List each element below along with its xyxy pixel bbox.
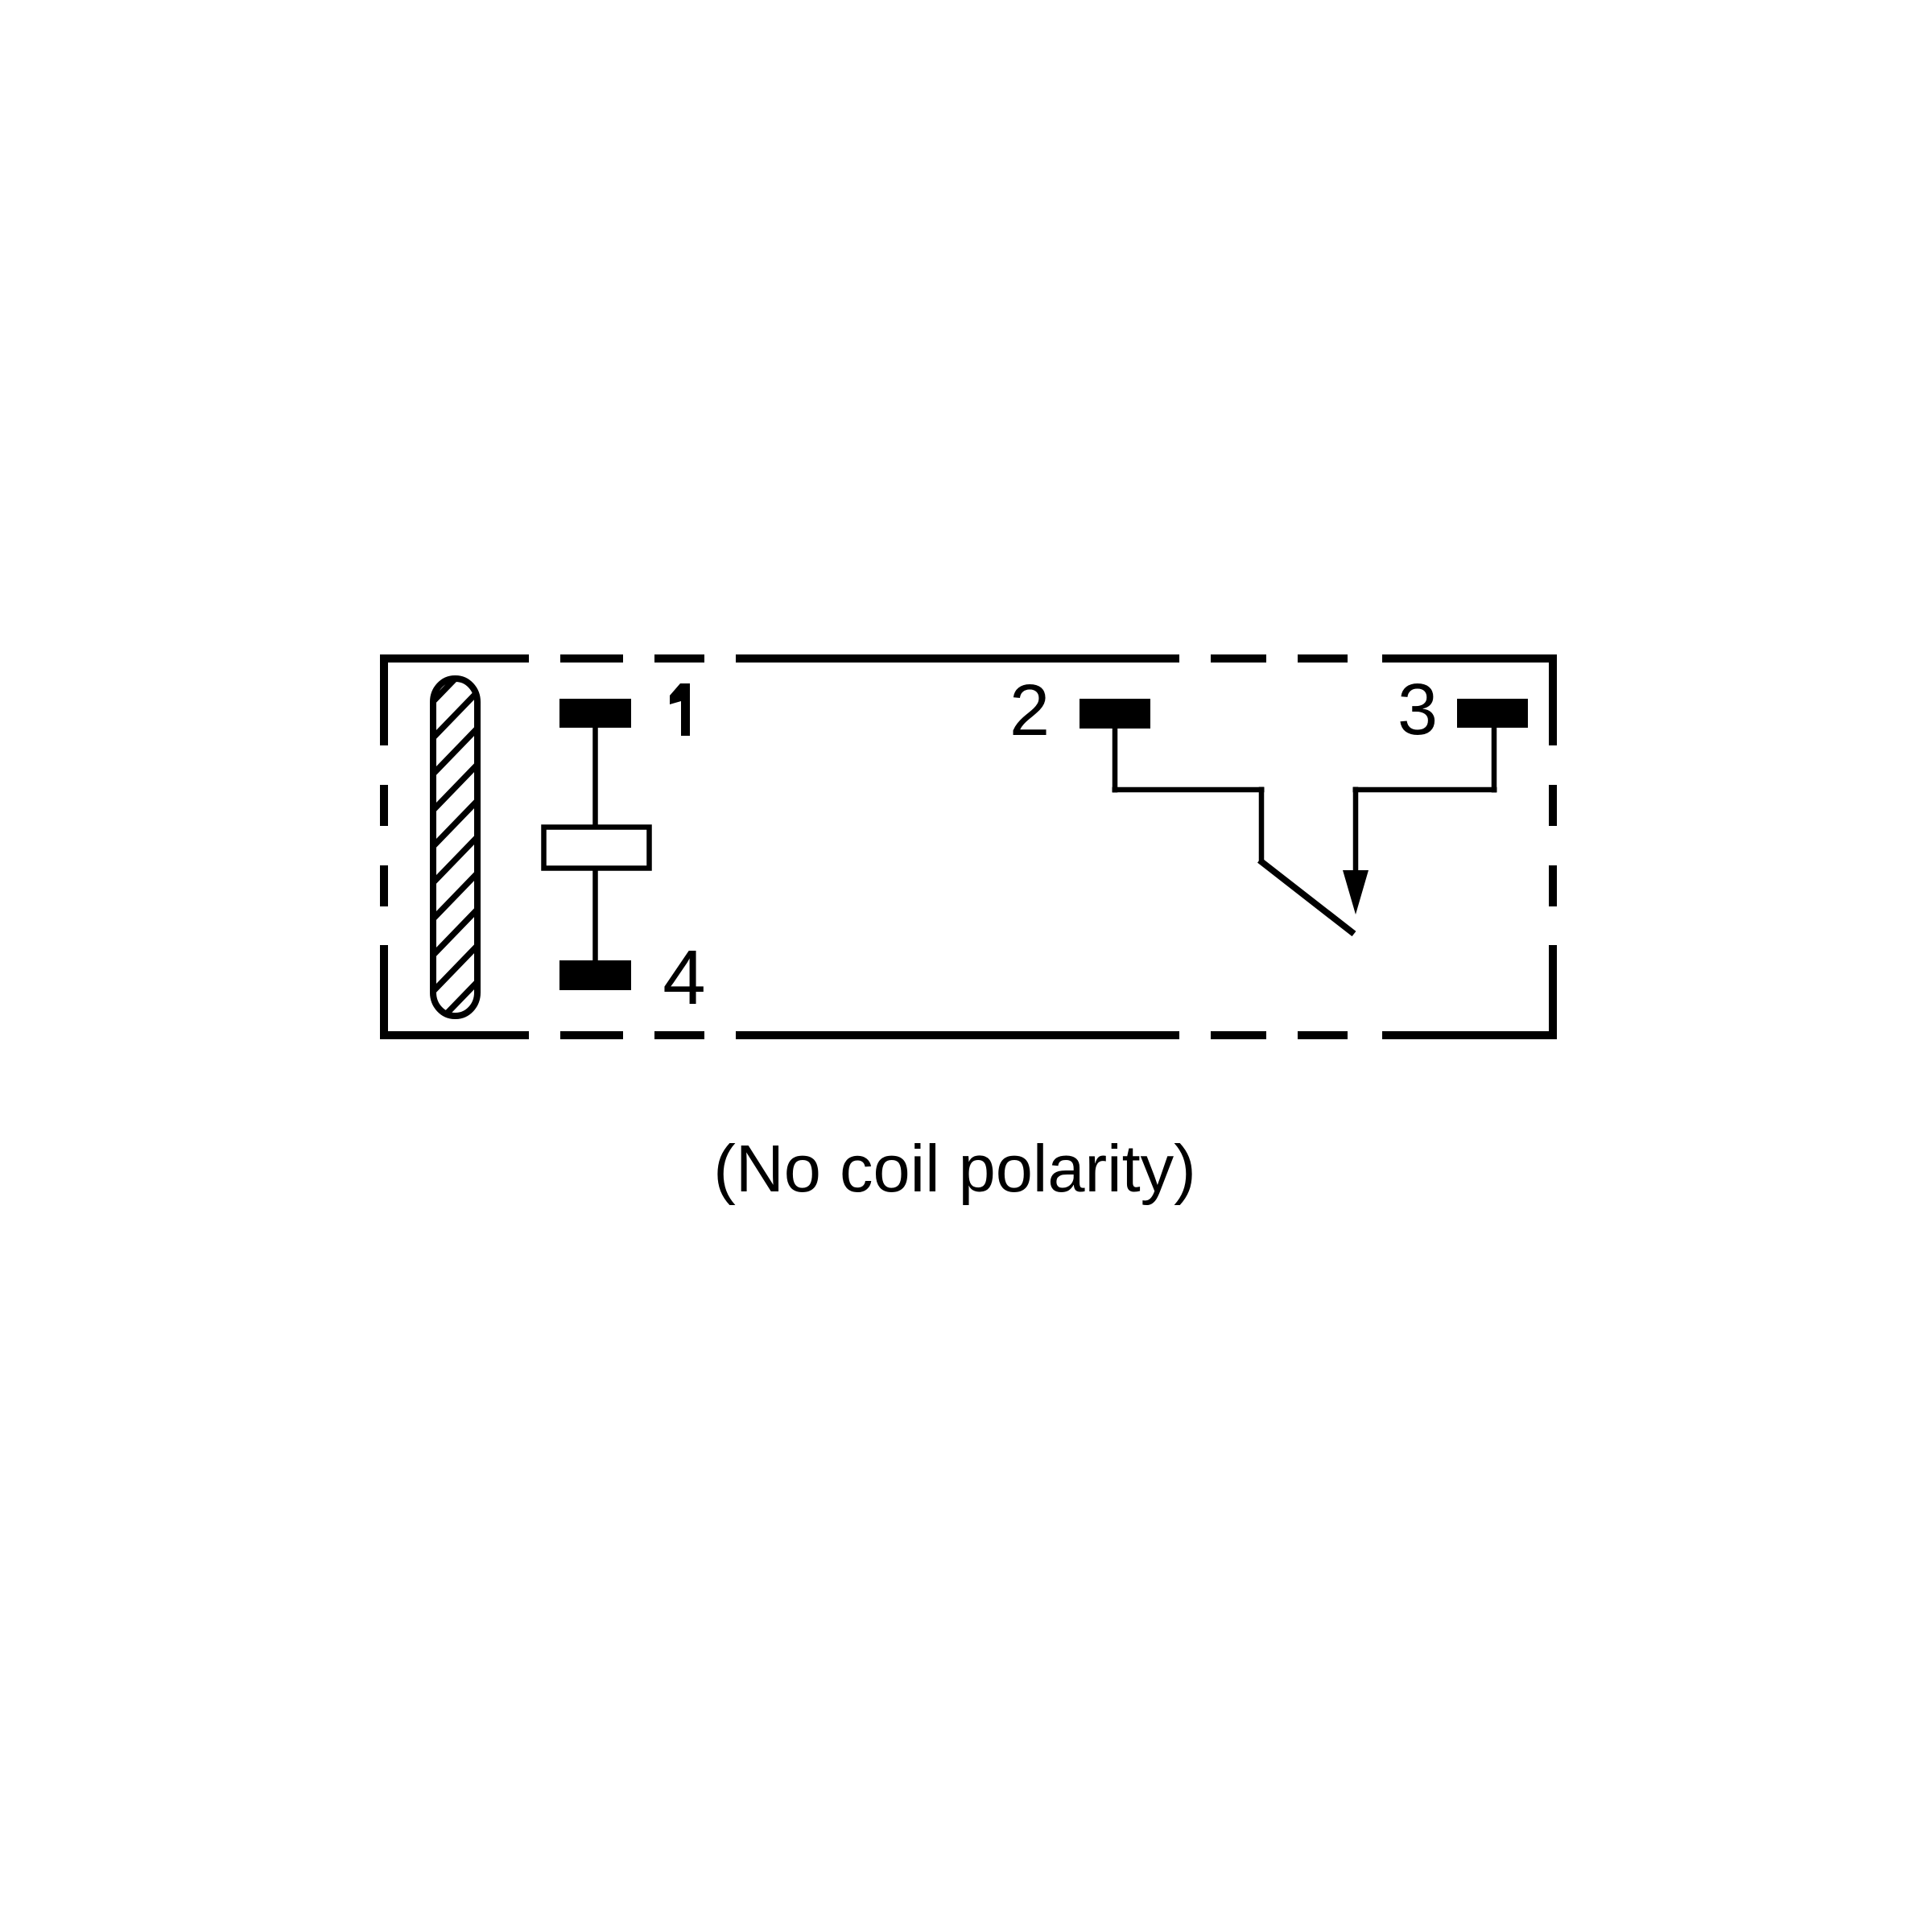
svg-text:4: 4 [663, 935, 705, 1021]
svg-text:(No coil polarity): (No coil polarity) [713, 1131, 1196, 1206]
svg-text:3: 3 [1397, 670, 1438, 750]
svg-text:2: 2 [1009, 671, 1050, 751]
